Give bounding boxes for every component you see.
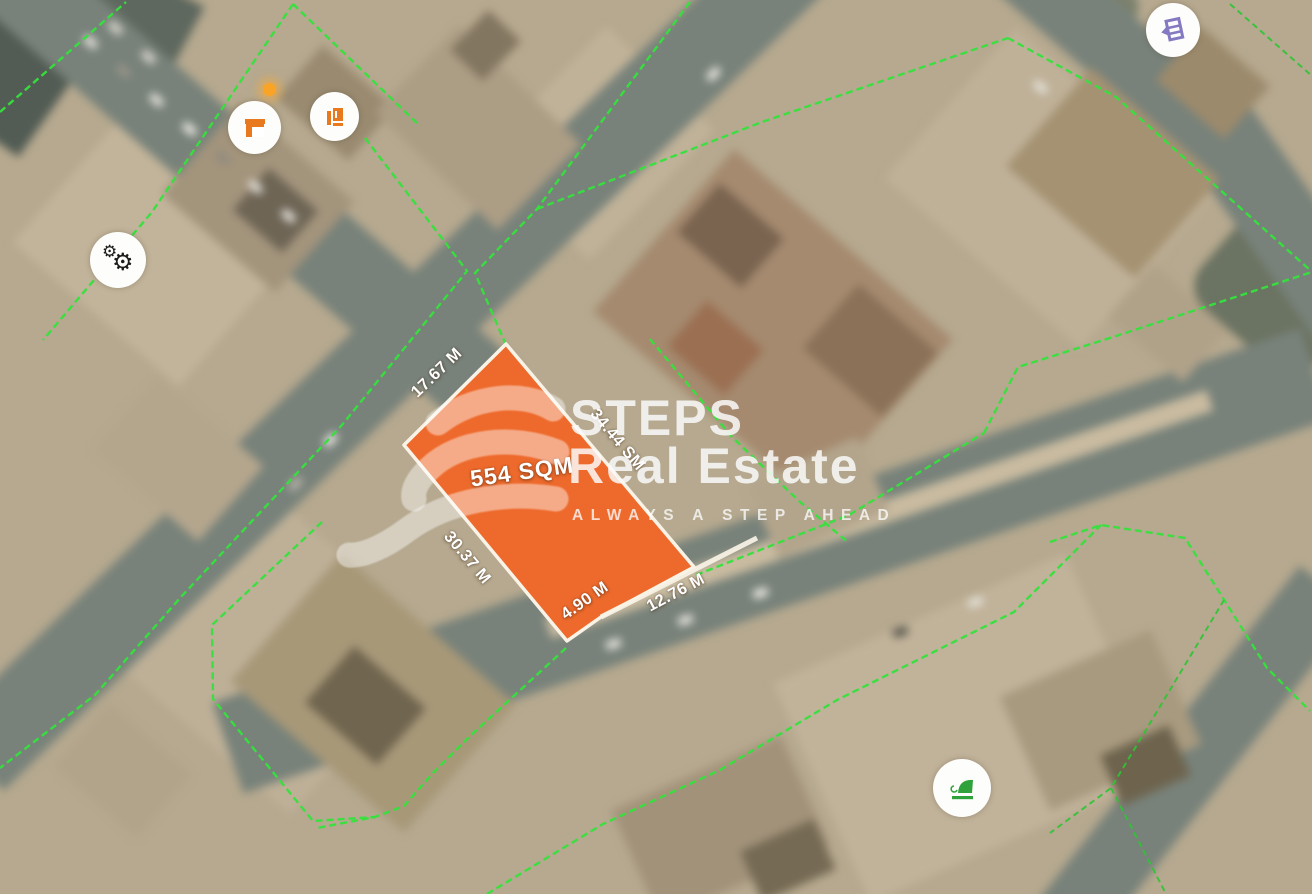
watermark-brand-top: STEPS xyxy=(570,393,744,443)
storefront-icon xyxy=(241,114,269,142)
furniture-icon xyxy=(322,104,348,130)
gears-marker: ⚙ ⚙ xyxy=(90,232,146,288)
gear-icon: ⚙ xyxy=(112,251,134,275)
mosque-marker xyxy=(933,759,991,817)
watermark-brand-bottom: Real Estate xyxy=(568,441,860,491)
building-entrance-marker xyxy=(1146,3,1200,57)
mosque-icon xyxy=(946,772,978,804)
building-entrance-icon xyxy=(1155,12,1191,48)
storefront-marker xyxy=(228,101,281,154)
watermark-tagline: ALWAYS A STEP AHEAD xyxy=(572,508,896,524)
street-light-dot xyxy=(263,83,276,96)
satellite-map-image: 17.67 M 34.44 SM 30.37 M 4.90 M 12.76 M … xyxy=(0,0,1312,894)
furniture-marker xyxy=(310,92,359,141)
